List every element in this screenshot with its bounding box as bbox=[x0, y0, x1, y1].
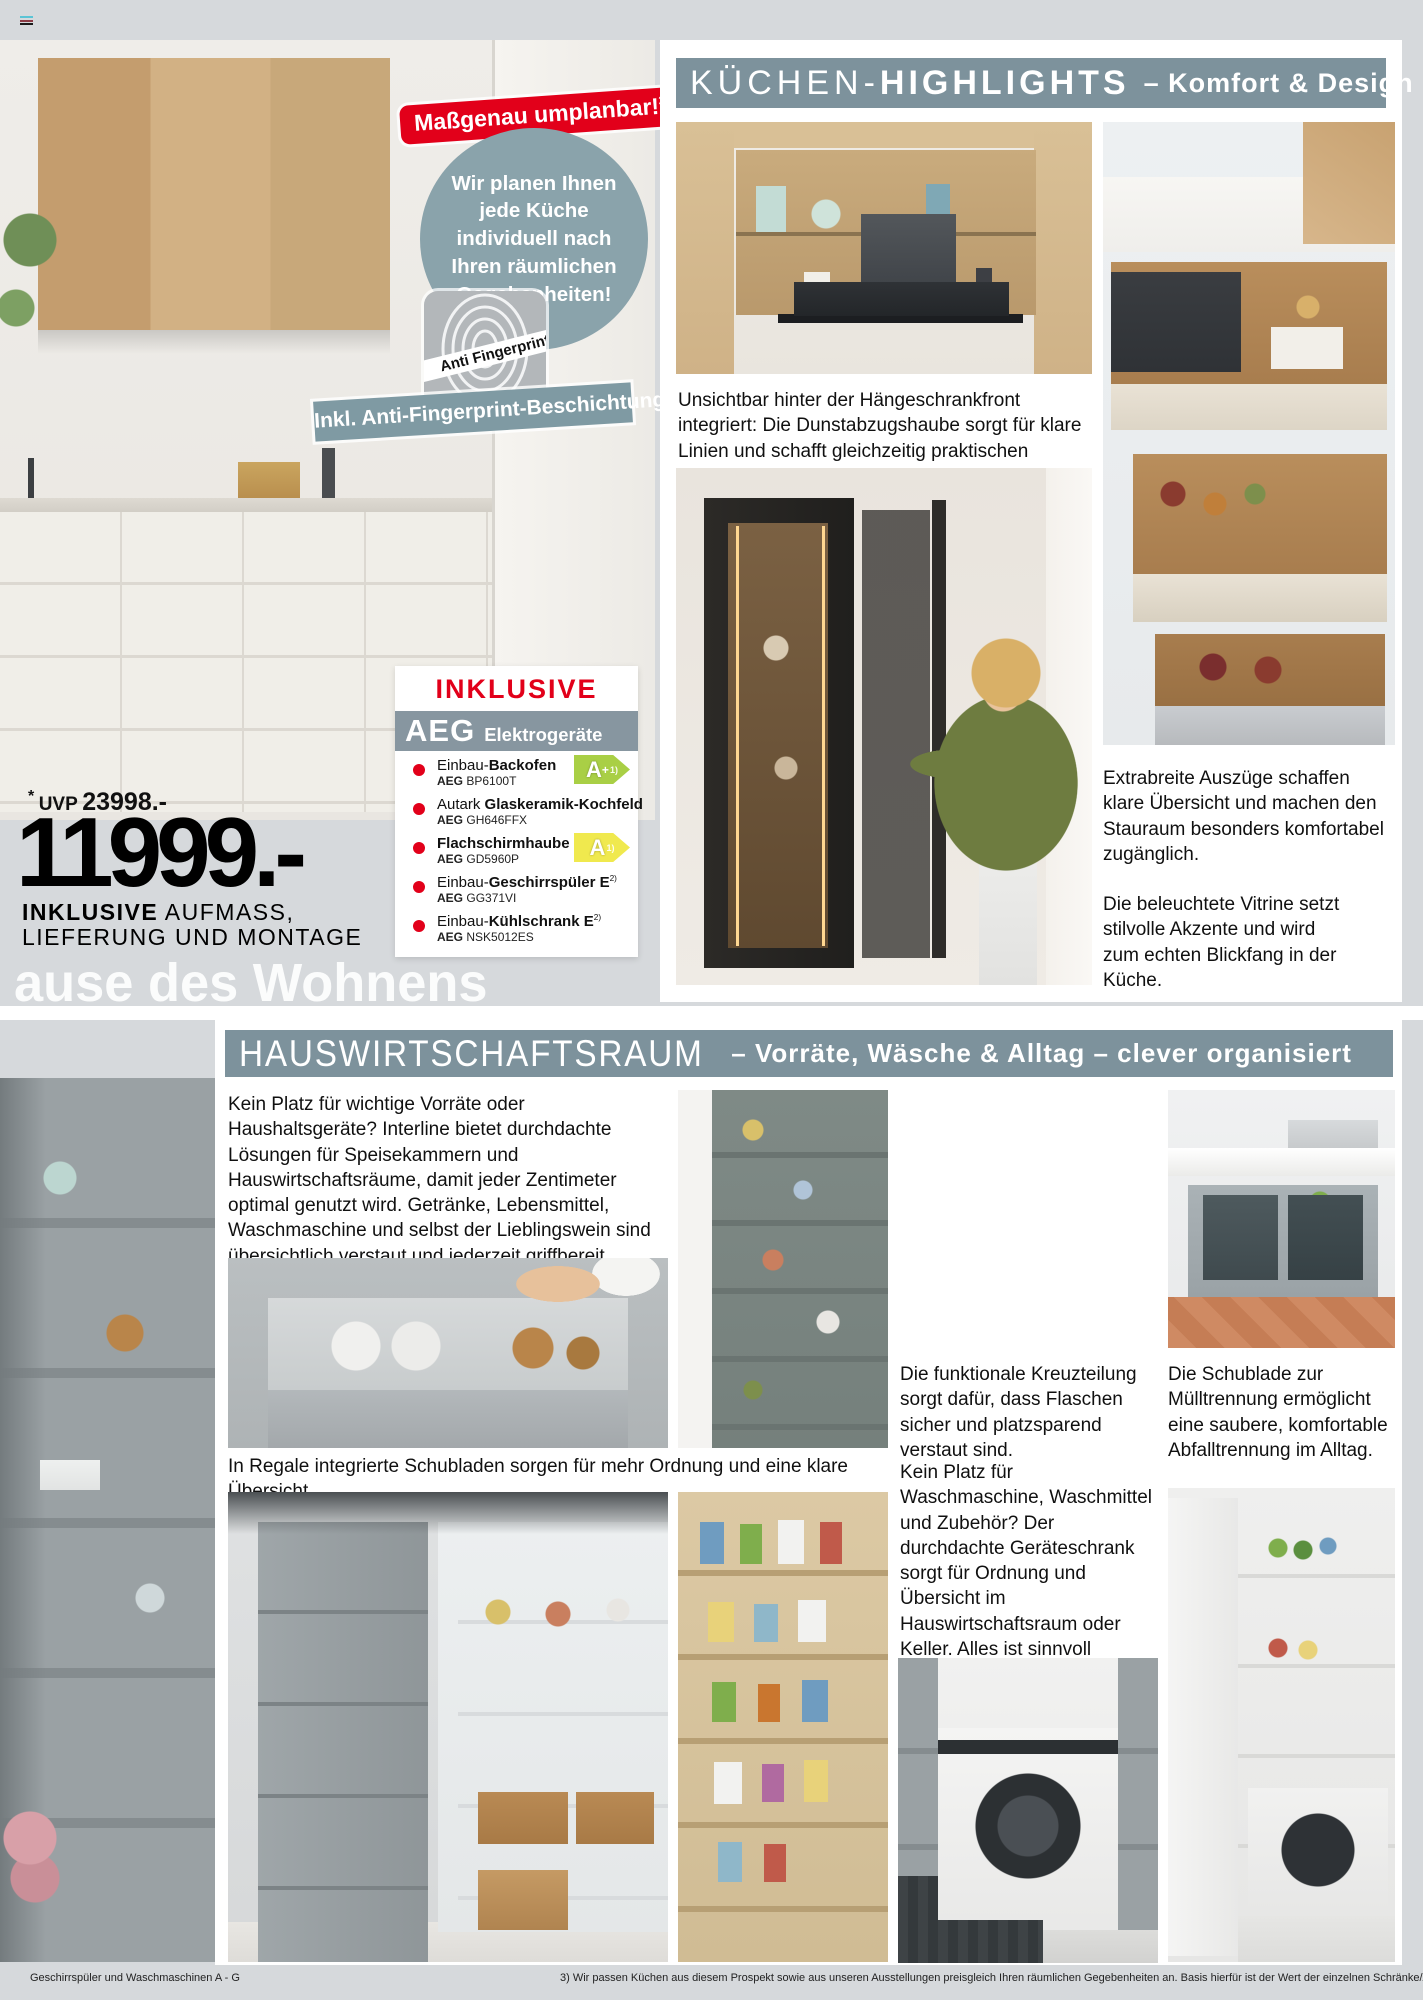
photo-pantry-tall bbox=[678, 1090, 888, 1448]
photo-wide-drawers bbox=[1103, 122, 1395, 745]
highlights-subtitle: – Komfort & Design bbox=[1144, 68, 1414, 99]
brand-watermark: ause des Wohnens bbox=[14, 952, 487, 1014]
catalog-page: Maßgenau umplanbar!3) Wir planen Ihnen j… bbox=[0, 0, 1423, 2000]
photo-corner-pantry bbox=[228, 1492, 668, 1962]
price-note-bold: INKLUSIVE bbox=[22, 899, 158, 925]
footer-footnote: 3) Wir passen Küchen aus diesem Prospekt… bbox=[560, 1972, 1423, 1984]
caption-cross-divider: Die funktionale Kreuzteilung sorgt dafür… bbox=[900, 1362, 1158, 1463]
menu-icon[interactable] bbox=[20, 16, 33, 27]
caption-vitrine: Die beleuchtete Vitrine setzt stilvolle … bbox=[1103, 892, 1353, 993]
appliance-name: Einbau-Geschirrspüler E2) bbox=[437, 875, 626, 891]
aeg-suffix: Elektrogeräte bbox=[484, 724, 602, 746]
appliance-item: Autark Glaskeramik-Kochfeld AEG GH646FFX bbox=[395, 790, 638, 829]
photo-stocked-shelves bbox=[678, 1492, 888, 1962]
appliance-model: AEG GG371VI bbox=[437, 891, 626, 905]
appliance-model: AEG NSK5012ES bbox=[437, 930, 626, 944]
appliance-item: Einbau-Kühlschrank E2) AEG NSK5012ES bbox=[395, 907, 638, 946]
highlights-title-bold: HIGHLIGHTS bbox=[880, 64, 1130, 103]
hwr-subtitle: – Vorräte, Wäsche & Alltag – clever orga… bbox=[731, 1038, 1352, 1069]
bullet-icon bbox=[413, 920, 425, 932]
hwr-header: HAUSWIRTSCHAFTSRAUM – Vorräte, Wäsche & … bbox=[225, 1030, 1393, 1077]
photo-hood-cabinet bbox=[676, 122, 1092, 374]
price-note-line1: AUFMASS, bbox=[158, 899, 294, 925]
bullet-icon bbox=[413, 881, 425, 893]
menu-bar bbox=[20, 16, 33, 18]
highlights-title-light: KÜCHEN- bbox=[690, 64, 880, 103]
appliance-model: AEG GH646FFX bbox=[437, 813, 626, 827]
price-note: INKLUSIVE AUFMASS, LIEFERUNG UND MONTAGE bbox=[22, 900, 362, 950]
price-note-line2: LIEFERUNG UND MONTAGE bbox=[22, 924, 362, 950]
photo-vitrine-woman bbox=[676, 468, 1092, 985]
aeg-brand-bar: AEG Elektrogeräte bbox=[395, 711, 638, 751]
bullet-icon bbox=[413, 803, 425, 815]
circle-planning-claim-text: Wir planen Ihnen jede Küche individuell … bbox=[430, 170, 638, 308]
appliance-item: Einbau-Backofen AEG BP6100T A+1) bbox=[395, 751, 638, 790]
photo-appliance-cabinet bbox=[1168, 1488, 1395, 1962]
appliance-name: Einbau-Kühlschrank E2) bbox=[437, 914, 626, 930]
footer-energy-range: Geschirrspüler und Waschmaschinen A - G bbox=[30, 1972, 240, 1984]
bullet-icon bbox=[413, 764, 425, 776]
hwr-intro: Kein Platz für wichtige Vorräte oder Hau… bbox=[228, 1092, 676, 1269]
photo-washer-basket bbox=[898, 1658, 1158, 1963]
menu-bar bbox=[20, 20, 33, 22]
inclusive-title: INKLUSIVE bbox=[395, 674, 638, 705]
hwr-title: HAUSWIRTSCHAFTSRAUM bbox=[239, 1033, 704, 1075]
photo-grey-shelf-strip bbox=[0, 1078, 215, 1962]
appliance-item: Einbau-Geschirrspüler E2) AEG GG371VI bbox=[395, 868, 638, 907]
highlights-header: KÜCHEN-HIGHLIGHTS – Komfort & Design bbox=[676, 58, 1386, 108]
section-separator bbox=[0, 1006, 1423, 1020]
price: 11999.- bbox=[16, 796, 301, 909]
appliance-item: Flachschirmhaube AEG GD5960P A1) bbox=[395, 829, 638, 868]
menu-bar bbox=[20, 23, 33, 25]
photo-sink-waste-bins bbox=[1168, 1090, 1395, 1348]
bullet-icon bbox=[413, 842, 425, 854]
appliance-name: Autark Glaskeramik-Kochfeld bbox=[437, 797, 626, 813]
aeg-logo: AEG bbox=[405, 711, 475, 751]
caption-waste-drawer: Die Schublade zur Mülltrennung ermöglich… bbox=[1168, 1362, 1400, 1463]
caption-drawers: Extrabreite Auszüge schaffen klare Übers… bbox=[1103, 766, 1395, 867]
photo-wine-cross-rack bbox=[898, 1090, 1158, 1348]
photo-shelf-drawer-hand bbox=[228, 1258, 668, 1448]
inclusive-appliances-box: INKLUSIVE AEG Elektrogeräte Einbau-Backo… bbox=[395, 666, 638, 957]
